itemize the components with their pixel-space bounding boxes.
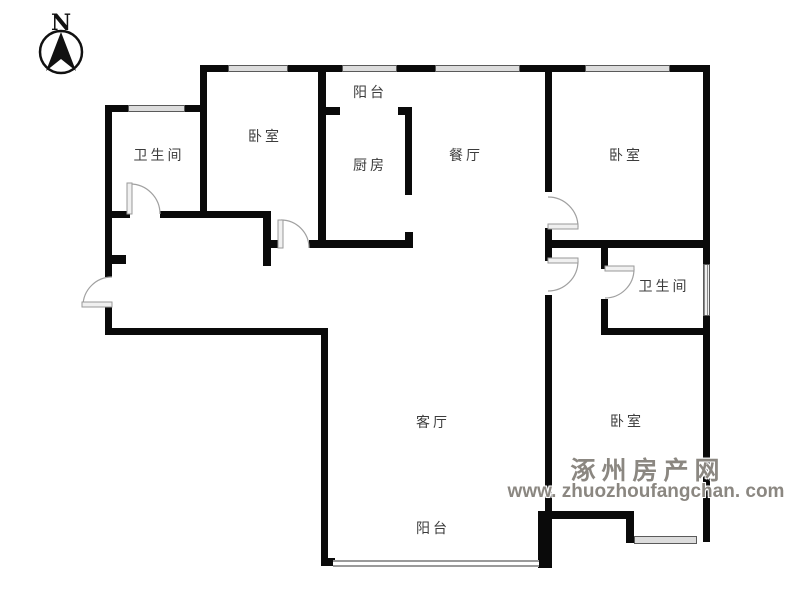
- bedroom2-door: [548, 197, 578, 229]
- room-label-bedroom3: 卧室: [610, 411, 644, 431]
- watermark-site-url: www. zhuozhoufangchan. com: [508, 481, 785, 503]
- bathroom1-door: [127, 183, 160, 214]
- room-label-balcony-bottom: 阳台: [416, 518, 450, 538]
- doors-layer: [0, 0, 800, 600]
- room-label-bathroom1: 卫生间: [134, 145, 185, 165]
- compass: N: [26, 5, 116, 95]
- room-label-living: 客厅: [416, 412, 450, 432]
- vestibule-door: [548, 258, 578, 291]
- bedroom1-door: [278, 220, 309, 248]
- room-label-balcony-top: 阳台: [353, 82, 387, 102]
- room-label-bathroom2: 卫生间: [639, 276, 690, 296]
- compass-needle-icon: [46, 32, 76, 71]
- entry-door: [82, 277, 112, 307]
- floorplan-canvas: N 卫生间 卧室 阳台 厨房 餐厅 卧室 卫生间 客厅 卧室 阳台 涿州房产网 …: [0, 0, 800, 600]
- room-label-bedroom1: 卧室: [248, 126, 282, 146]
- room-label-dining: 餐厅: [449, 145, 483, 165]
- bathroom2-door: [605, 266, 634, 298]
- room-label-bedroom2: 卧室: [609, 145, 643, 165]
- room-label-kitchen: 厨房: [353, 155, 387, 175]
